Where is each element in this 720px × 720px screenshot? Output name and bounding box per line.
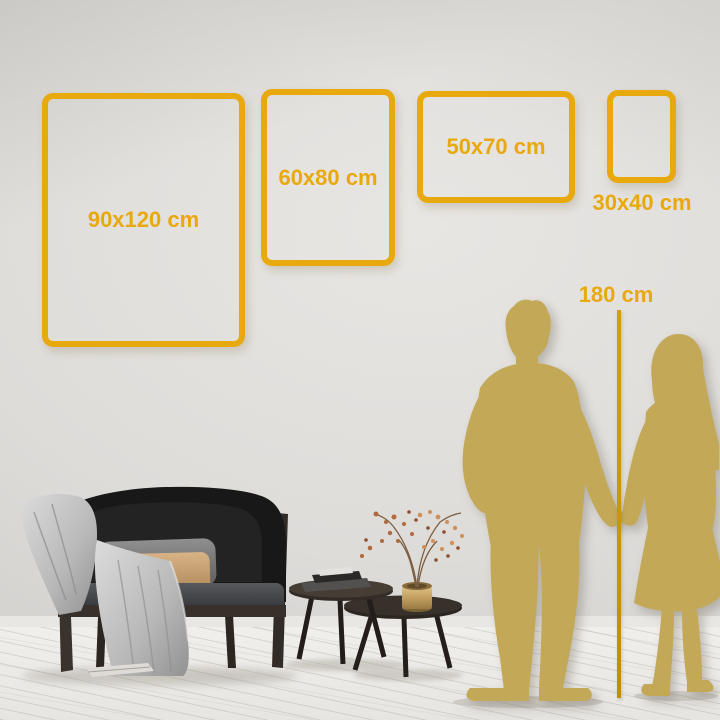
size-label-90x120: 90x120 cm	[88, 207, 199, 233]
size-frame-60x80: 60x80 cm	[261, 89, 395, 266]
size-label-30x40: 30x40 cm	[584, 190, 700, 216]
size-label-50x70: 50x70 cm	[446, 134, 545, 160]
size-frame-90x120: 90x120 cm	[42, 93, 245, 347]
wood-plank-floor	[0, 627, 720, 720]
height-measurement-line	[617, 310, 621, 698]
size-frame-50x70: 50x70 cm	[417, 91, 575, 203]
size-label-60x80: 60x80 cm	[278, 165, 377, 191]
size-frame-30x40	[607, 90, 676, 183]
size-comparison-scene: 90x120 cm 60x80 cm 50x70 cm 30x40 cm	[0, 0, 720, 720]
height-label: 180 cm	[561, 282, 671, 308]
